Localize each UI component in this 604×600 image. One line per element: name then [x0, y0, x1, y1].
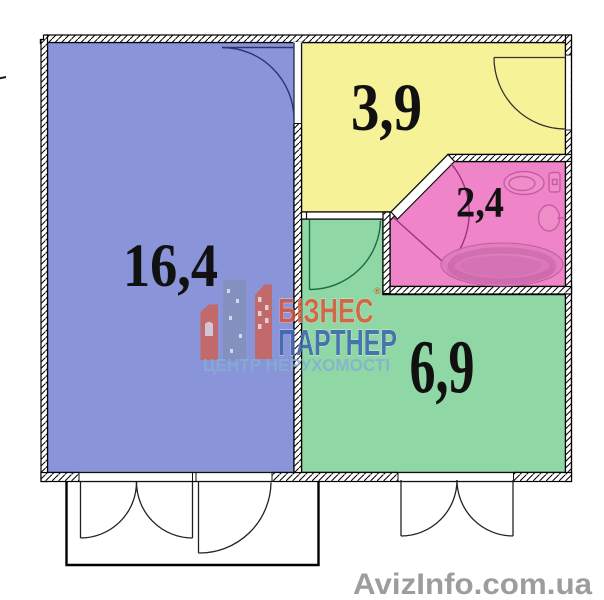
svg-text:ЦЕНТР НЕРУХОМОСТІ: ЦЕНТР НЕРУХОМОСТІ [203, 355, 390, 375]
svg-text:2,4: 2,4 [456, 180, 504, 227]
svg-text:®: ® [374, 286, 381, 296]
svg-text:16,4: 16,4 [123, 233, 218, 300]
svg-text:AvizInfo.com.ua: AvizInfo.com.ua [353, 568, 592, 600]
svg-text:6,9: 6,9 [410, 326, 475, 410]
svg-text:3,9: 3,9 [351, 69, 422, 145]
